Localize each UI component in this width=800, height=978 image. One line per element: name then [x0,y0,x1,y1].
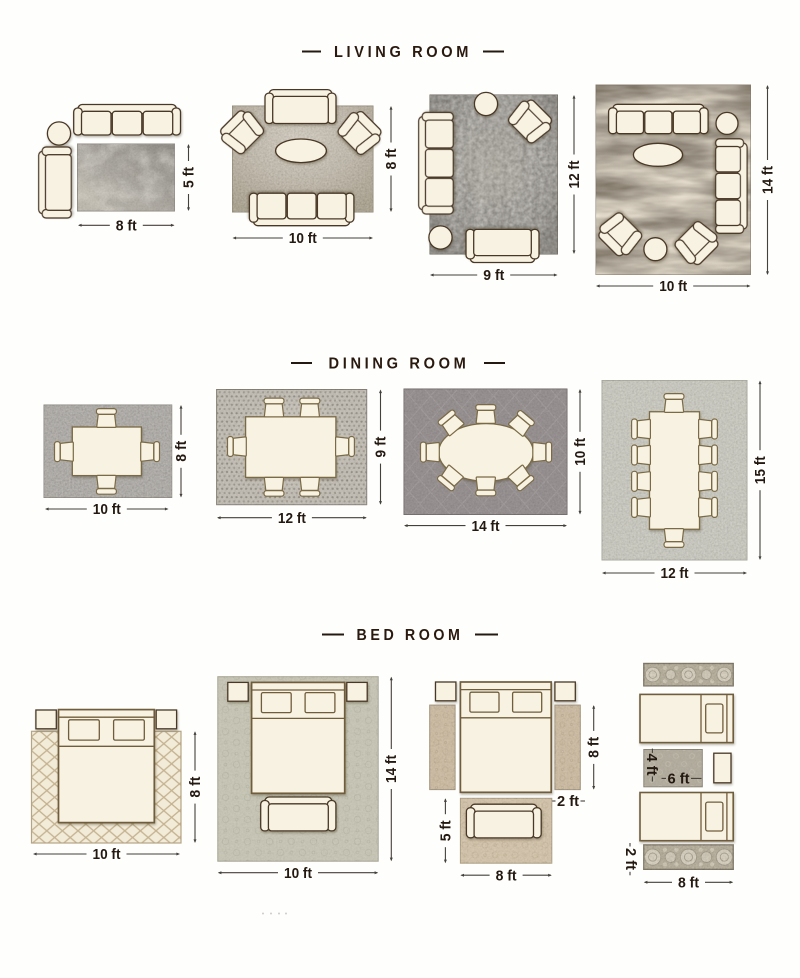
svg-text:10 ft: 10 ft [93,502,121,518]
svg-text:14 ft: 14 ft [384,755,400,783]
svg-text:15 ft: 15 ft [753,456,769,484]
svg-text:5 ft: 5 ft [438,820,454,841]
svg-text:8 ft: 8 ft [384,148,400,169]
svg-text:12 ft: 12 ft [661,566,689,582]
svg-text:10 ft: 10 ft [284,866,312,882]
svg-text:2 ft: 2 ft [622,848,638,870]
svg-text:14 ft: 14 ft [472,519,500,535]
svg-text:8 ft: 8 ft [496,868,517,884]
svg-text:BED ROOM: BED ROOM [357,627,464,644]
svg-text:4 ft: 4 ft [643,754,659,776]
svg-text:10 ft: 10 ft [93,847,121,863]
svg-text:8 ft: 8 ft [587,737,603,758]
svg-text:DINING ROOM: DINING ROOM [329,356,470,373]
svg-text:9 ft: 9 ft [373,436,389,457]
svg-text:8 ft: 8 ft [188,776,204,797]
svg-text:2 ft: 2 ft [557,794,579,810]
svg-text:10 ft: 10 ft [659,279,687,295]
svg-text:14 ft: 14 ft [760,166,776,194]
svg-text:9 ft: 9 ft [483,268,504,284]
svg-text:8 ft: 8 ft [174,441,190,462]
svg-text:8 ft: 8 ft [116,219,137,235]
svg-text:10 ft: 10 ft [573,438,589,466]
svg-text:8 ft: 8 ft [678,876,699,892]
svg-text:12 ft: 12 ft [278,511,306,527]
svg-text:LIVING ROOM: LIVING ROOM [334,44,472,61]
svg-text:5 ft: 5 ft [181,167,197,188]
svg-text:6 ft: 6 ft [668,771,690,787]
svg-text:12 ft: 12 ft [567,160,583,188]
svg-text:10 ft: 10 ft [289,231,317,247]
